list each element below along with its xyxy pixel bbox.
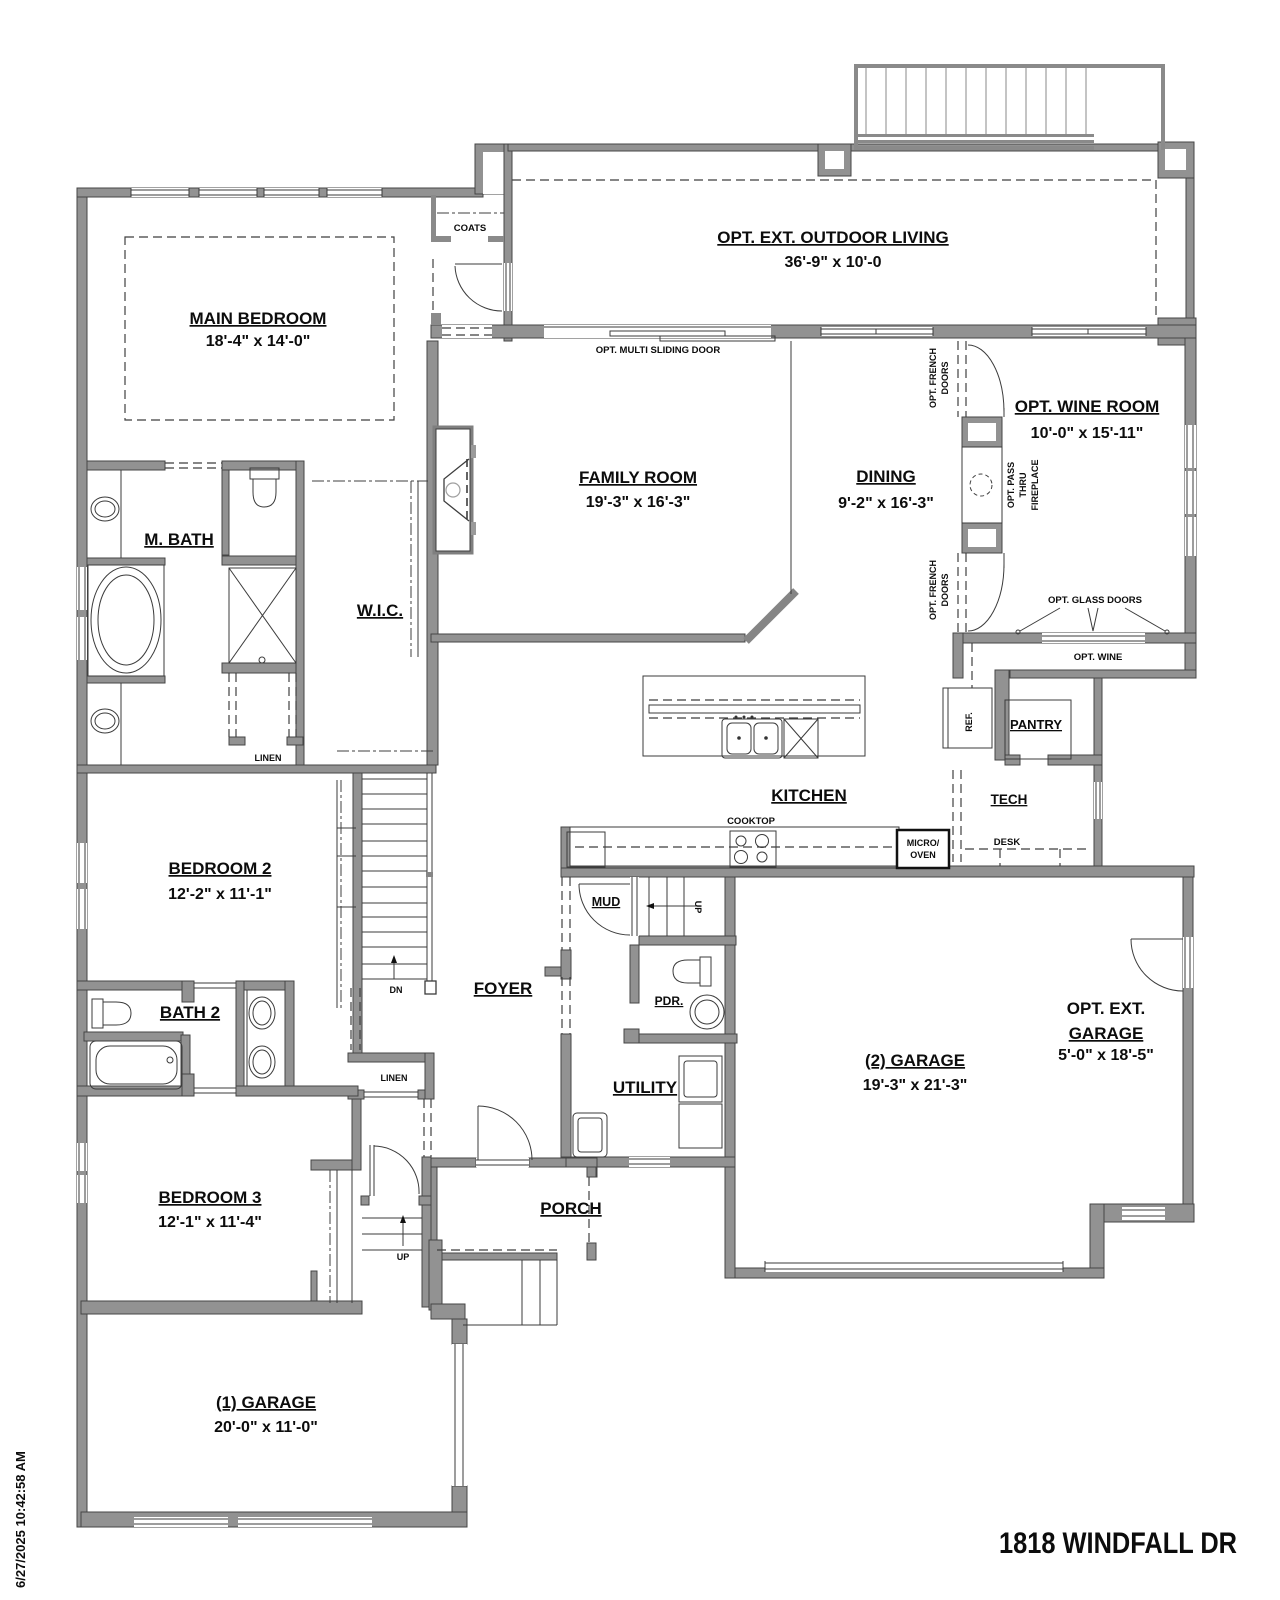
- svg-text:OPT. MULTI SLIDING DOOR: OPT. MULTI SLIDING DOOR: [596, 345, 721, 356]
- svg-text:9'-2" x 16'-3": 9'-2" x 16'-3": [838, 495, 934, 512]
- svg-text:THRU: THRU: [1018, 473, 1028, 498]
- svg-text:DESK: DESK: [994, 837, 1021, 848]
- svg-text:OPT. FRENCH: OPT. FRENCH: [928, 348, 938, 408]
- svg-text:GARAGE: GARAGE: [1069, 1024, 1144, 1043]
- svg-text:PDR.: PDR.: [655, 994, 684, 1008]
- svg-text:19'-3" x 21'-3": 19'-3" x 21'-3": [863, 1077, 968, 1094]
- svg-text:BEDROOM 3: BEDROOM 3: [159, 1188, 262, 1207]
- svg-text:36'-9" x 10'-0: 36'-9" x 10'-0: [784, 254, 881, 271]
- svg-text:KITCHEN: KITCHEN: [771, 786, 847, 805]
- svg-text:(2) GARAGE: (2) GARAGE: [865, 1051, 965, 1070]
- svg-text:FOYER: FOYER: [474, 979, 533, 998]
- svg-text:FAMILY ROOM: FAMILY ROOM: [579, 468, 697, 487]
- svg-text:UTILITY: UTILITY: [613, 1078, 678, 1097]
- svg-text:REF.: REF.: [964, 712, 974, 732]
- svg-text:BATH 2: BATH 2: [160, 1003, 220, 1022]
- svg-text:COOKTOP: COOKTOP: [727, 816, 776, 827]
- svg-text:MICRO/: MICRO/: [907, 838, 940, 848]
- svg-text:W.I.C.: W.I.C.: [357, 601, 403, 620]
- svg-text:OPT. FRENCH: OPT. FRENCH: [928, 560, 938, 620]
- svg-text:DINING: DINING: [856, 467, 916, 486]
- svg-text:OPT. PASS: OPT. PASS: [1006, 462, 1016, 508]
- svg-text:12'-1" x 11'-4": 12'-1" x 11'-4": [158, 1214, 262, 1231]
- svg-text:M. BATH: M. BATH: [144, 530, 214, 549]
- svg-text:1818 WINDFALL DR: 1818 WINDFALL DR: [999, 1527, 1237, 1560]
- svg-text:TECH: TECH: [991, 792, 1028, 807]
- svg-text:DN: DN: [390, 985, 403, 995]
- svg-text:UP: UP: [397, 1252, 410, 1262]
- svg-text:COATS: COATS: [454, 223, 487, 234]
- svg-text:19'-3" x 16'-3": 19'-3" x 16'-3": [586, 494, 691, 511]
- svg-text:10'-0" x 15'-11": 10'-0" x 15'-11": [1031, 425, 1144, 442]
- svg-text:PANTRY: PANTRY: [1010, 717, 1062, 732]
- svg-text:BEDROOM 2: BEDROOM 2: [169, 859, 272, 878]
- svg-text:20'-0" x 11'-0": 20'-0" x 11'-0": [214, 1419, 318, 1436]
- svg-text:OPT. EXT. OUTDOOR LIVING: OPT. EXT. OUTDOOR LIVING: [717, 228, 948, 247]
- svg-text:OPT. WINE ROOM: OPT. WINE ROOM: [1015, 397, 1160, 416]
- svg-text:FIREPLACE: FIREPLACE: [1030, 459, 1040, 510]
- svg-text:OPT. WINE: OPT. WINE: [1074, 652, 1123, 663]
- svg-text:5'-0" x 18'-5": 5'-0" x 18'-5": [1058, 1047, 1154, 1064]
- svg-text:DOORS: DOORS: [940, 573, 950, 606]
- svg-text:DOORS: DOORS: [940, 361, 950, 394]
- svg-text:OPT. EXT.: OPT. EXT.: [1067, 999, 1145, 1018]
- svg-text:MUD: MUD: [592, 895, 620, 909]
- svg-text:LINEN: LINEN: [255, 753, 282, 763]
- svg-text:OPT. GLASS DOORS: OPT. GLASS DOORS: [1048, 595, 1142, 606]
- svg-text:UP: UP: [693, 901, 703, 914]
- svg-text:12'-2" x 11'-1": 12'-2" x 11'-1": [168, 886, 272, 903]
- svg-text:6/27/2025 10:42:58 AM: 6/27/2025 10:42:58 AM: [13, 1451, 28, 1588]
- svg-text:MAIN BEDROOM: MAIN BEDROOM: [190, 309, 327, 328]
- svg-text:OVEN: OVEN: [910, 850, 936, 860]
- svg-text:PORCH: PORCH: [540, 1199, 601, 1218]
- svg-text:LINEN: LINEN: [381, 1073, 408, 1083]
- svg-text:(1) GARAGE: (1) GARAGE: [216, 1393, 316, 1412]
- svg-text:18'-4" x 14'-0": 18'-4" x 14'-0": [206, 333, 311, 350]
